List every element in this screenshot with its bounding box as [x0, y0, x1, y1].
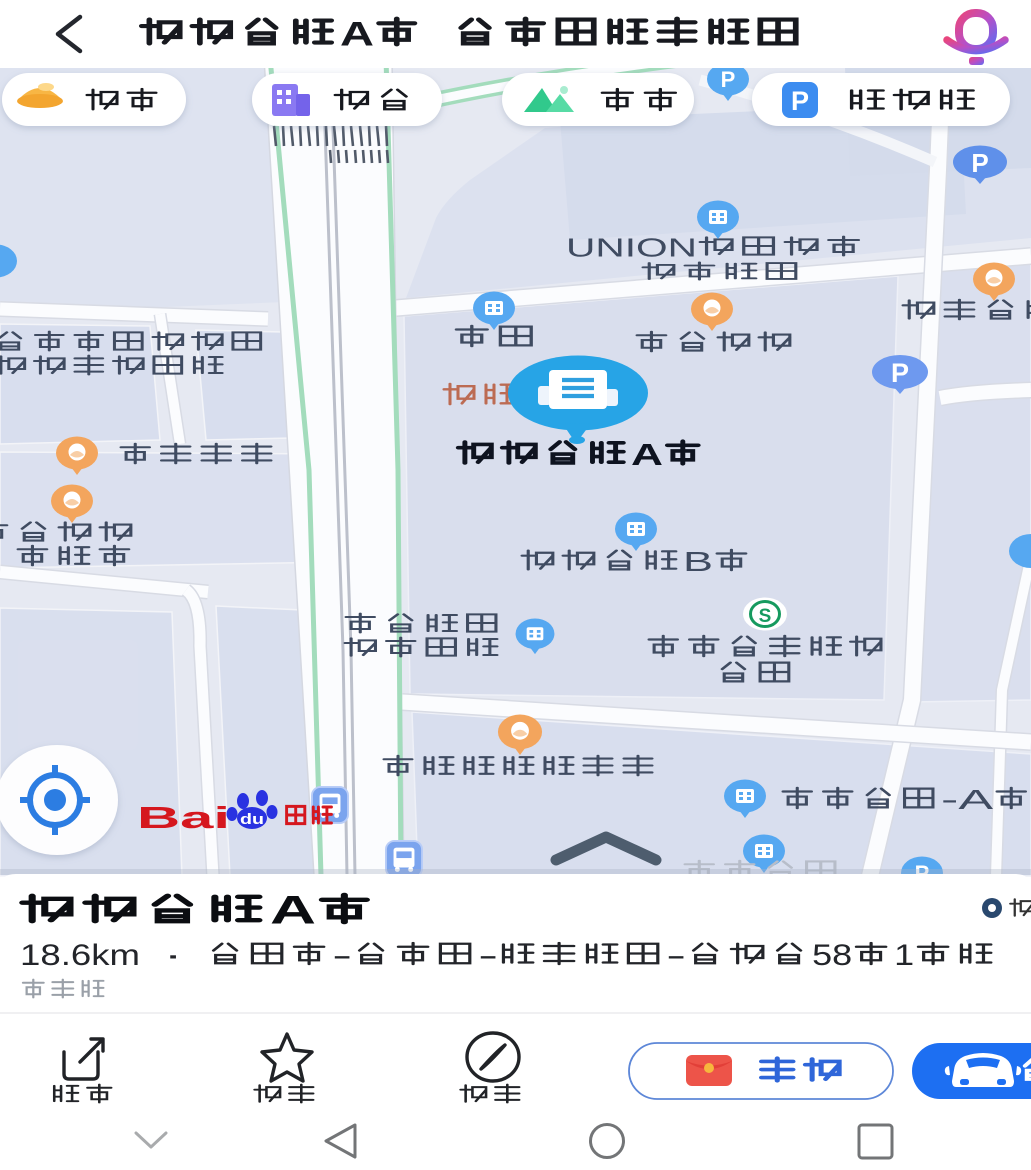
svg-text:·: · — [163, 939, 183, 972]
svg-text:58: 58 — [812, 939, 852, 972]
svg-text:1: 1 — [894, 939, 914, 972]
svg-text:A: A — [631, 437, 663, 472]
svg-text:-A: -A — [941, 784, 994, 815]
svg-text:S: S — [759, 606, 772, 627]
svg-text:A: A — [340, 16, 374, 54]
svg-text:-: - — [478, 939, 498, 972]
svg-text:P: P — [971, 148, 988, 178]
svg-text:P: P — [891, 358, 909, 388]
svg-text:Bai: Bai — [137, 800, 230, 835]
svg-text:du: du — [240, 811, 264, 828]
svg-text:B: B — [683, 546, 713, 577]
svg-text:A: A — [270, 889, 316, 933]
svg-text:-: - — [666, 939, 686, 972]
svg-text:P: P — [791, 86, 809, 116]
svg-text:-: - — [332, 939, 352, 972]
svg-text:UNION: UNION — [566, 232, 697, 262]
svg-text:18.6km: 18.6km — [20, 939, 140, 972]
